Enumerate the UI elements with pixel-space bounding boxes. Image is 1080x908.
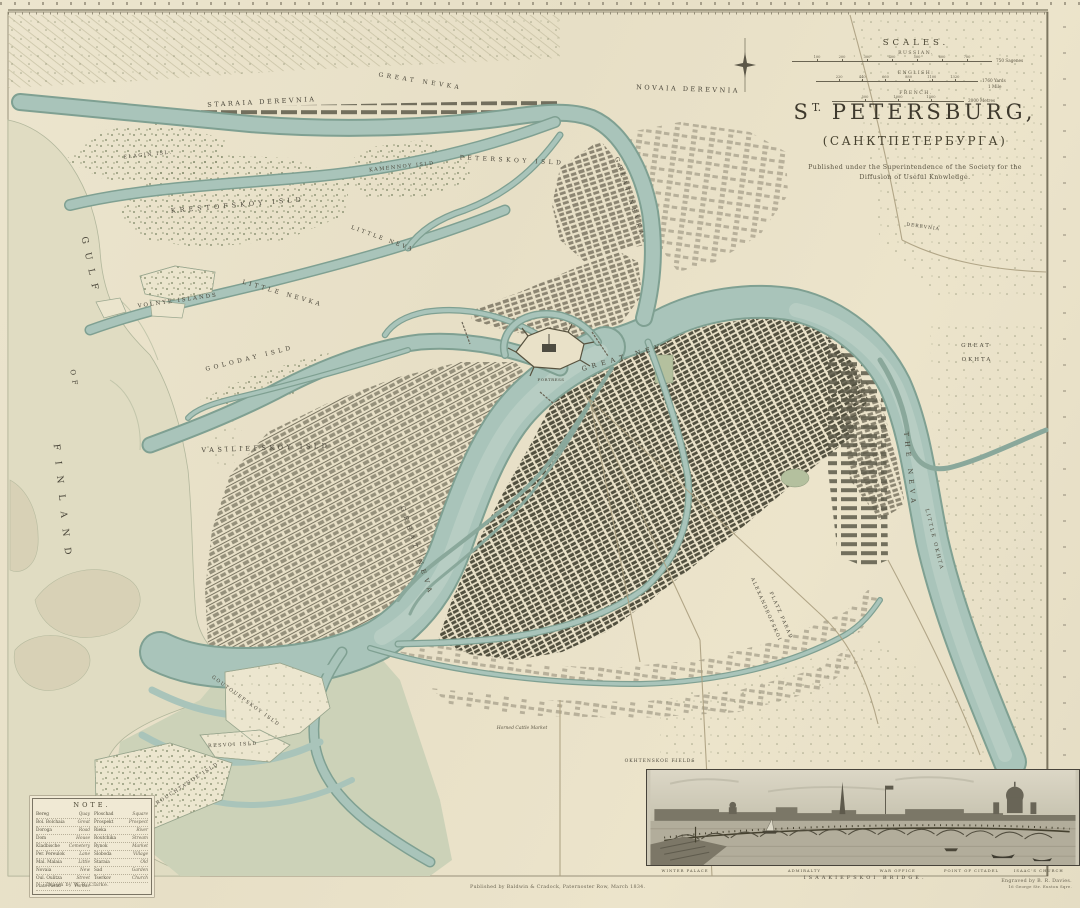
scale-tick-number: 1000	[893, 95, 902, 99]
note-meaning: Great	[78, 819, 90, 826]
note-meaning: New	[80, 867, 90, 874]
note-heading: NOTE.	[36, 801, 148, 809]
note-term: Mal. Malaia	[36, 859, 62, 866]
title-block: ST. PETERSBURG, (САНКТПЕТЕРБУРГА) Publis…	[790, 100, 1040, 181]
north-mark-icon	[734, 38, 756, 92]
scale-tick-number: 220	[836, 75, 843, 79]
note-meaning: Market	[132, 843, 148, 850]
scale-tick-number: 1500	[926, 95, 935, 99]
note-row: KladbischeCemetery	[36, 843, 90, 851]
map-label: NOVAIA DEREVNIA	[636, 83, 740, 95]
note-row: RiekaRiver	[94, 827, 148, 835]
scale-bar-line: 100200300400500600700	[792, 61, 992, 62]
note-term: Dom	[36, 835, 46, 842]
note-meaning: Village	[133, 851, 148, 858]
note-row: BeregQuay	[36, 811, 90, 819]
note-row: SlobodaVillage	[94, 851, 148, 859]
note-term: Bol. Bolchaia	[36, 819, 65, 826]
note-meaning: House	[76, 835, 90, 842]
panorama-label: POINT OF CITADEL	[944, 868, 999, 873]
note-meaning: Lane	[79, 851, 90, 858]
scale-end-label: 750 Sagenes	[996, 58, 1023, 63]
note-term: Bereg	[36, 811, 49, 818]
note-meaning: Little	[78, 859, 90, 866]
panorama-label: WINTER PALACE	[662, 868, 709, 873]
note-row: Per. PereulokLane	[36, 851, 90, 859]
note-row: Mal. MalaiaLittle	[36, 859, 90, 867]
scale-bar: RUSSIAN.100200300400500600700750 Sagenes	[792, 51, 1040, 68]
note-term: Oul. Oulitza	[36, 875, 62, 882]
note-meaning: Cemetery	[69, 843, 90, 850]
scale-tick	[839, 79, 840, 82]
note-row: ProspektProspect	[94, 819, 148, 827]
scale-tick	[917, 59, 918, 62]
scale-tick-number: 700	[964, 55, 971, 59]
panorama-engraving	[646, 769, 1080, 866]
note-column-1: BeregQuayBol. BolchaiaGreatDorogaRoadDom…	[36, 811, 90, 891]
credit-engraved-line2: 16 George Str. Euston Sqre.	[1001, 884, 1072, 889]
map-label: OKHTENSKOE FIELDS	[625, 758, 696, 764]
note-term: Prospekt	[94, 819, 113, 826]
scale-tick-number: 880	[905, 75, 912, 79]
note-row: RynokMarket	[94, 843, 148, 851]
scale-tick	[885, 79, 886, 82]
note-term: Rynok	[94, 843, 108, 850]
note-term: Doroga	[36, 827, 52, 834]
note-row: Bol. BolchaiaGreat	[36, 819, 90, 827]
scale-tick	[867, 59, 868, 62]
note-meaning: Prospect	[129, 819, 148, 826]
note-term: Rieka	[94, 827, 106, 834]
map-label: FORTRESS	[537, 377, 564, 382]
publisher-line-2: Diffusion of Useful Knowledge.	[790, 174, 1040, 181]
note-row: TserkovChurch	[94, 875, 148, 883]
scale-tick-number: 500	[914, 55, 921, 59]
note-meaning: Stream	[132, 835, 148, 842]
scale-tick-number: 500	[862, 95, 869, 99]
scale-tick	[955, 79, 956, 82]
credit-drawn: Drawn by W. B. Clarke.	[46, 883, 109, 888]
scale-tick-number: 100	[814, 55, 821, 59]
note-row: Oul. OulitzaStreet	[36, 875, 90, 883]
scale-tick	[892, 59, 893, 62]
scale-tick-number: 300	[864, 55, 871, 59]
scales-heading: SCALES.	[792, 38, 1040, 48]
map-sheet: STARAIA DEREVNIANOVAIA DEREVNIAGREAT NEV…	[0, 0, 1080, 908]
scale-tick	[862, 79, 863, 82]
map-label: Horned Cattle Market	[496, 725, 548, 731]
scale-tick	[942, 59, 943, 62]
note-meaning: Church	[132, 875, 148, 882]
note-row: DorogaRoad	[36, 827, 90, 835]
note-meaning: Square	[132, 811, 148, 818]
note-meaning: Quay	[79, 811, 90, 818]
map-label: OKHTA	[962, 357, 993, 363]
scale-tick-number: 400	[889, 55, 896, 59]
map-title: ST. PETERSBURG,	[790, 100, 1040, 124]
note-row: RoutchikaStream	[94, 835, 148, 843]
note-row: SadGarden	[94, 867, 148, 875]
panorama-label: WAR OFFICE	[880, 868, 916, 873]
scale-tick-number: 200	[839, 55, 846, 59]
map-title-cyrillic: (САНКТПЕТЕРБУРГА)	[790, 134, 1040, 148]
note-box: NOTE. BeregQuayBol. BolchaiaGreatDorogaR…	[32, 798, 152, 895]
note-meaning: Garden	[132, 867, 148, 874]
credit-engraved: Engraved by B. R. Davies. 16 George Str.…	[1001, 879, 1072, 889]
scale-bar-label: ENGLISH.	[792, 71, 1040, 76]
scale-bar-label: FRENCH.	[792, 91, 1040, 96]
panorama-label: ISAAC'S CHURCH	[1014, 868, 1064, 873]
note-row: StaraiaOld	[94, 859, 148, 867]
note-term: Kladbische	[36, 843, 60, 850]
scale-tick-number: 1100	[927, 75, 936, 79]
panorama-caption: ISAAKIEFSKOI BRIDGE.	[804, 875, 927, 881]
scale-tick	[967, 59, 968, 62]
scale-tick	[842, 59, 843, 62]
map-label: PETERSKOY ISLD	[460, 154, 565, 166]
scale-end-label: 1760 Yards	[982, 78, 1006, 83]
scale-tick	[817, 59, 818, 62]
note-term: Sad	[94, 867, 102, 874]
note-term: Sloboda	[94, 851, 112, 858]
note-term: Per. Pereulok	[36, 851, 65, 858]
note-meaning: Old	[140, 859, 148, 866]
scale-bar: ENGLISH.220440660880110013201760 Yards1 …	[792, 71, 1040, 88]
note-term: Tserkov	[94, 875, 111, 882]
note-term: Routchika	[94, 835, 116, 842]
scale-end-label-2: 1 Mile	[988, 84, 1001, 89]
note-meaning: Street	[76, 875, 90, 882]
scales-block: SCALES. RUSSIAN.100200300400500600700750…	[792, 38, 1040, 108]
scale-tick	[932, 79, 933, 82]
note-term: Staraia	[94, 859, 110, 866]
note-row: PloschadSquare	[94, 811, 148, 819]
note-row: NovaiaNew	[36, 867, 90, 875]
note-meaning: Road	[79, 827, 90, 834]
note-row: DomHouse	[36, 835, 90, 843]
note-meaning: River	[136, 827, 148, 834]
scale-tick	[909, 79, 910, 82]
scale-tick-number: 660	[882, 75, 889, 79]
credit-published: Published by Baldwin & Cradock, Paternos…	[470, 885, 645, 890]
scale-tick-number: 440	[859, 75, 866, 79]
scale-tick-number: 600	[939, 55, 946, 59]
map-label: GREAT NEVKA	[378, 71, 463, 91]
scale-bar-line: 22044066088011001320	[816, 81, 978, 82]
note-term: Novaia	[36, 867, 51, 874]
publisher-line-1: Published under the Superintendence of t…	[790, 164, 1040, 171]
note-column-2: PloschadSquareProspektProspectRiekaRiver…	[94, 811, 148, 891]
panorama-label: ADMIRALTY	[788, 868, 821, 873]
note-term: Ploschad	[94, 811, 114, 818]
scale-tick-number: 1320	[950, 75, 959, 79]
map-label: GREAT	[961, 343, 991, 349]
